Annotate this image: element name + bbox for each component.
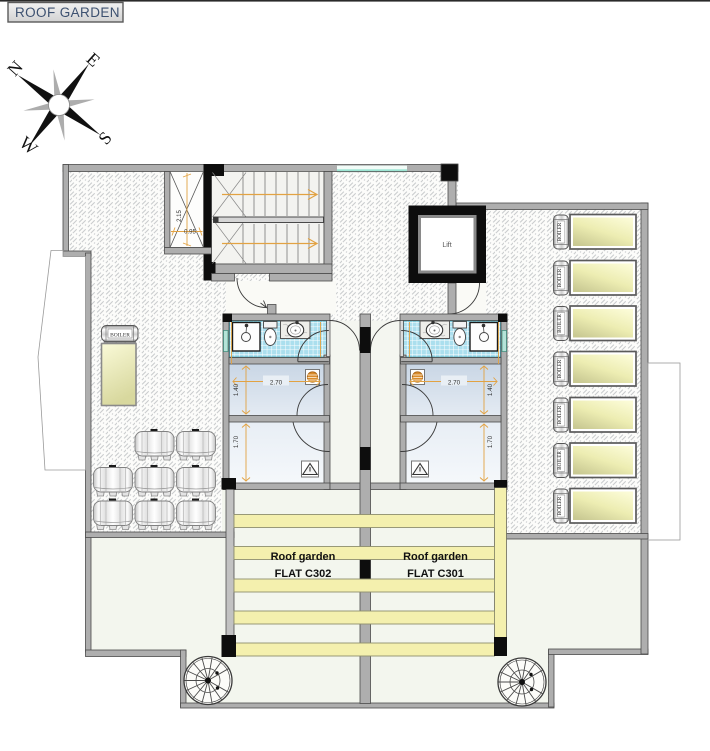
svg-text:FLAT C302: FLAT C302: [275, 568, 332, 580]
svg-text:0.95: 0.95: [184, 230, 196, 236]
svg-text:ROOF GARDEN: ROOF GARDEN: [15, 5, 120, 20]
svg-text:1.40: 1.40: [487, 383, 494, 396]
svg-text:Lift: Lift: [442, 242, 451, 249]
svg-text:1.40: 1.40: [233, 383, 240, 396]
svg-text:2.70: 2.70: [448, 380, 461, 387]
svg-text:2.15: 2.15: [177, 210, 183, 222]
svg-text:1.70: 1.70: [487, 435, 494, 448]
svg-text:2.70: 2.70: [270, 380, 283, 387]
svg-text:Roof garden: Roof garden: [403, 551, 468, 563]
svg-text:BOILER: BOILER: [110, 333, 130, 339]
svg-text:1.70: 1.70: [233, 435, 240, 448]
svg-text:Roof garden: Roof garden: [271, 551, 336, 563]
svg-text:FLAT C301: FLAT C301: [407, 568, 464, 580]
